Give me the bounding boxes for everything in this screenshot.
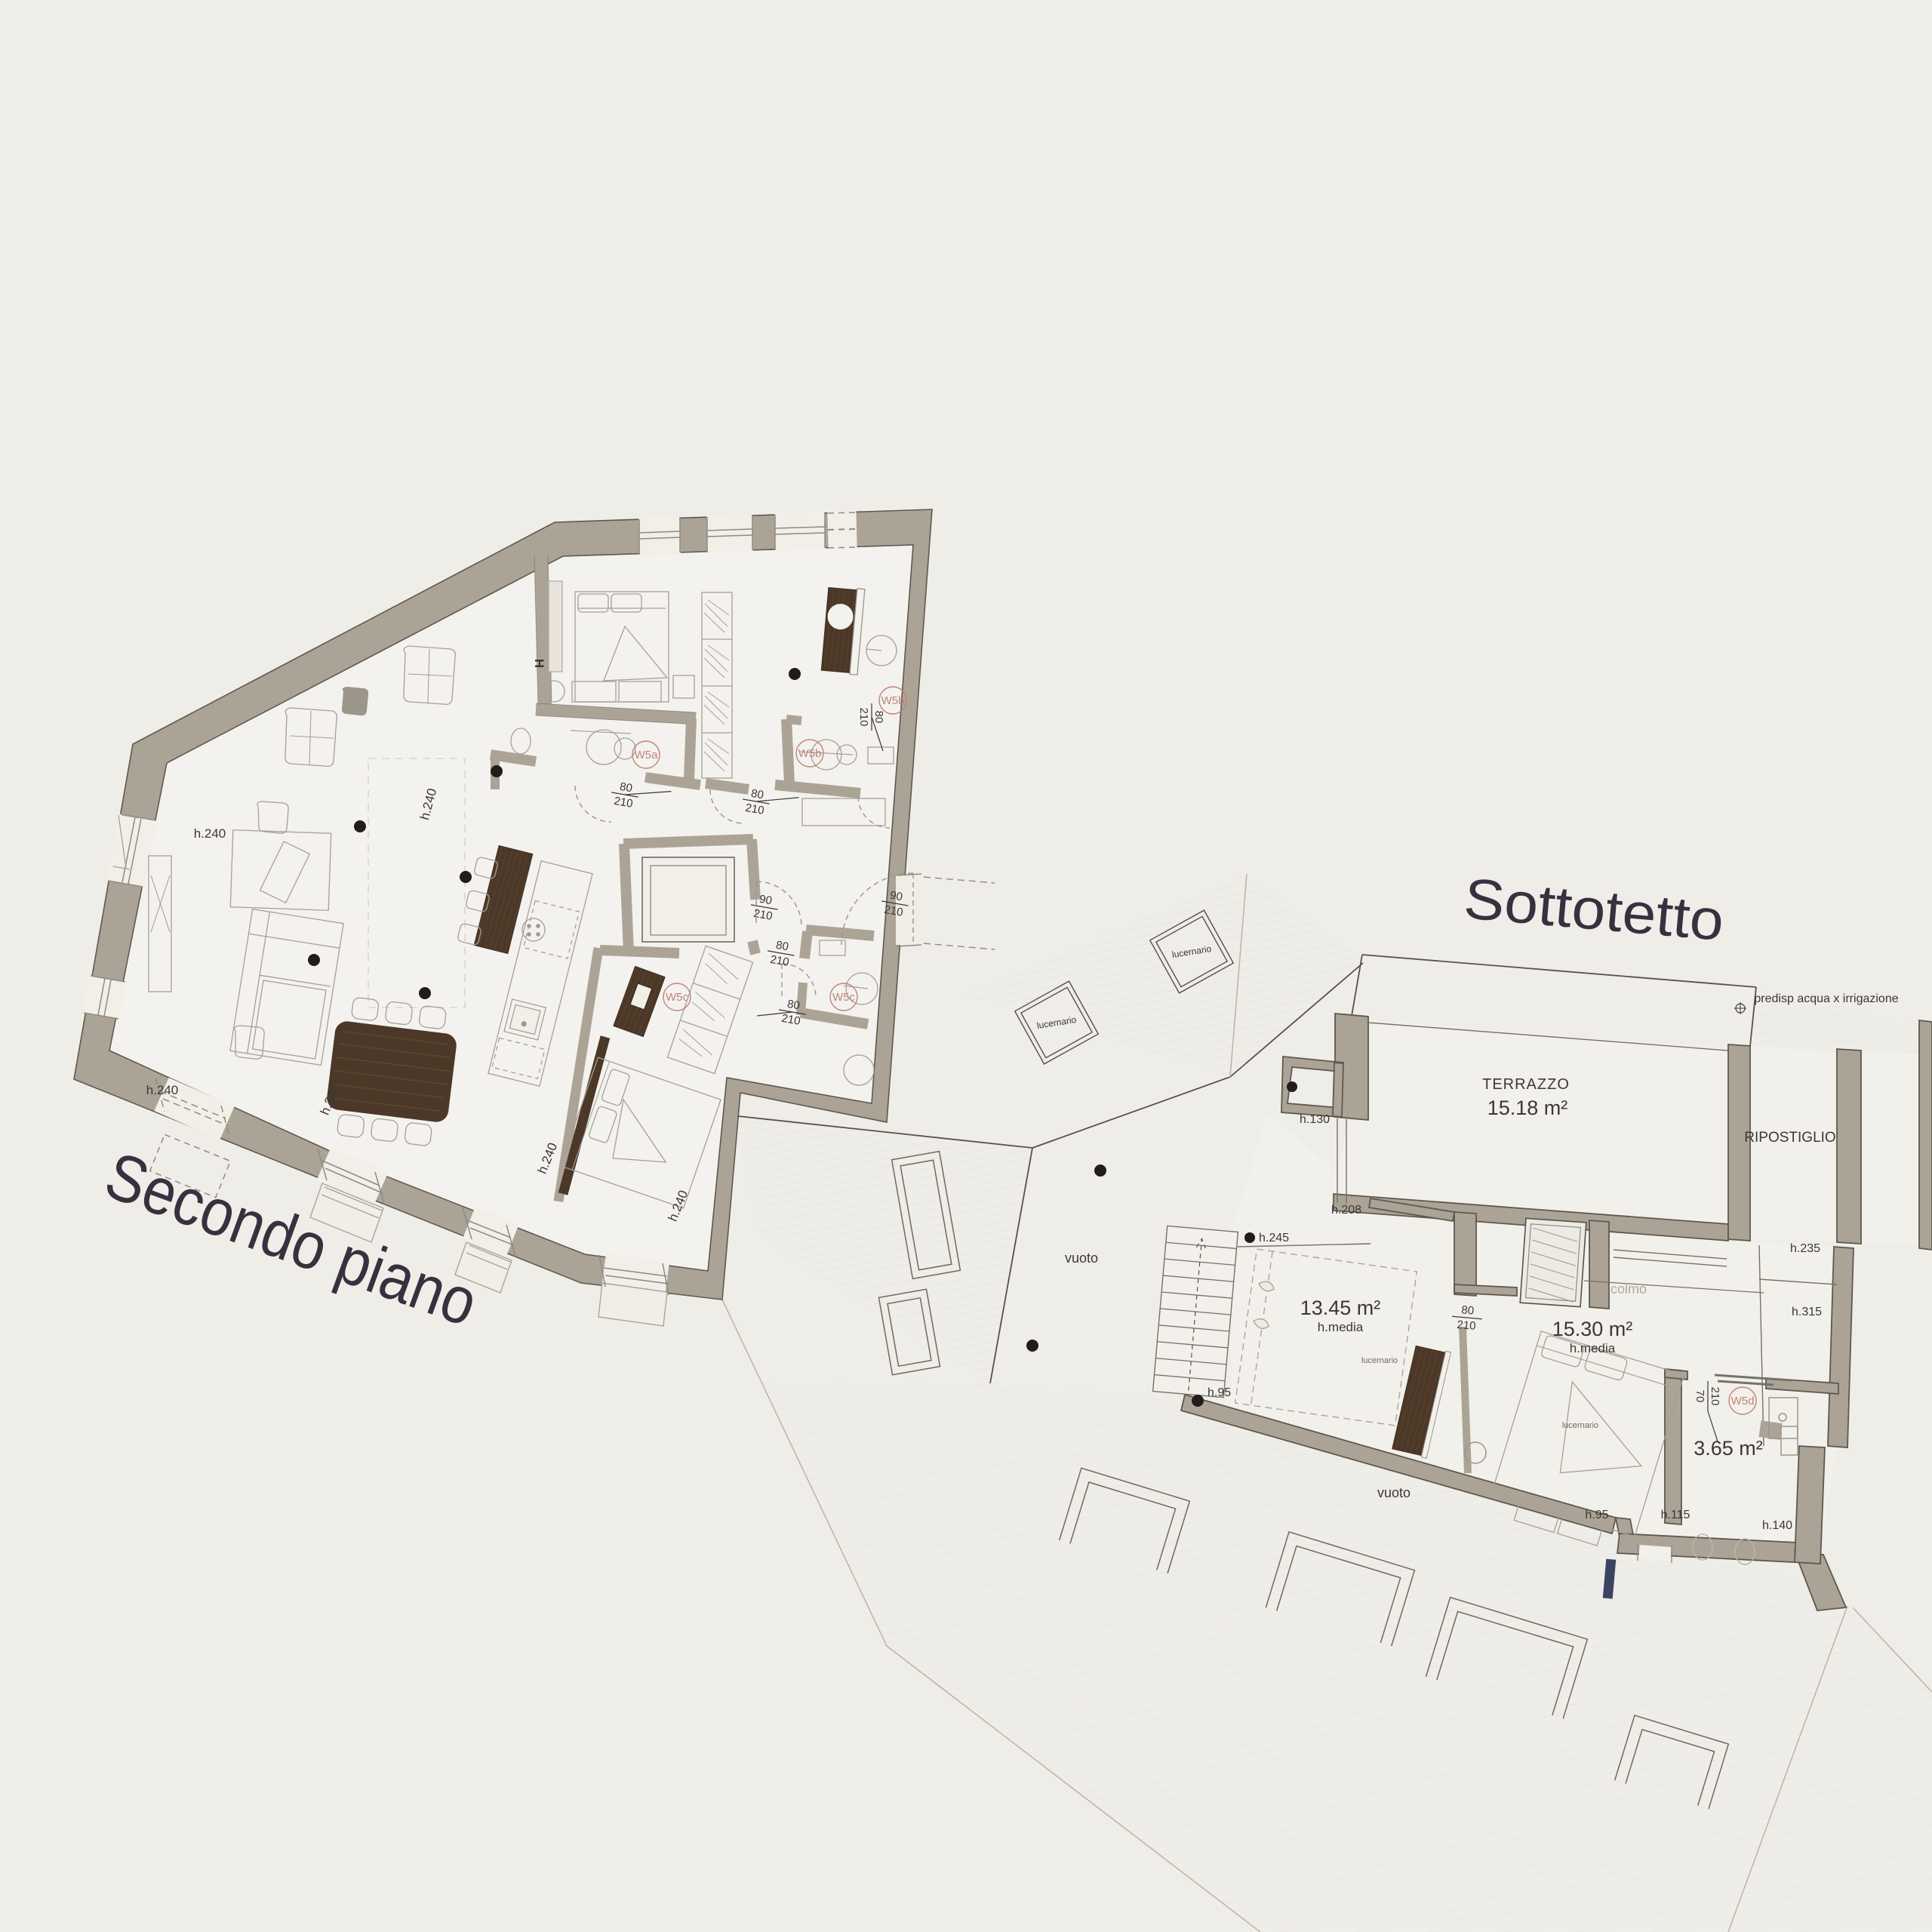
svg-text:80: 80 [750, 787, 764, 802]
svg-text:15.18 m²: 15.18 m² [1487, 1097, 1568, 1119]
svg-text:h.245: h.245 [1259, 1232, 1289, 1244]
svg-text:h.240: h.240 [146, 1083, 179, 1097]
svg-text:h.140: h.140 [1762, 1519, 1792, 1532]
svg-text:80: 80 [786, 998, 801, 1013]
svg-text:70: 70 [1694, 1390, 1706, 1403]
svg-text:vuoto: vuoto [1065, 1251, 1098, 1266]
svg-text:RIPOSTIGLIO: RIPOSTIGLIO [1744, 1130, 1835, 1146]
svg-text:lucernario: lucernario [1361, 1356, 1398, 1365]
svg-text:h.95: h.95 [1207, 1386, 1231, 1399]
svg-text:W5d: W5d [1731, 1395, 1755, 1407]
svg-text:lucernario: lucernario [1562, 1421, 1598, 1430]
svg-text:predisp acqua x irrigazione: predisp acqua x irrigazione [1754, 992, 1898, 1005]
svg-text:H: H [532, 659, 546, 668]
svg-text:3.65 m²: 3.65 m² [1694, 1437, 1763, 1460]
svg-text:80: 80 [775, 939, 789, 954]
svg-text:W5a: W5a [635, 749, 659, 761]
svg-text:vuoto: vuoto [1377, 1485, 1411, 1500]
svg-text:13.45 m²: 13.45 m² [1300, 1297, 1381, 1319]
svg-text:W5b: W5b [881, 694, 905, 707]
svg-text:210: 210 [1709, 1386, 1721, 1405]
svg-text:90: 90 [758, 893, 773, 908]
svg-text:W5c: W5c [832, 991, 856, 1004]
svg-text:h.235: h.235 [1790, 1242, 1820, 1255]
svg-text:W5b: W5b [798, 747, 822, 760]
svg-text:h.208: h.208 [1331, 1204, 1361, 1217]
svg-text:80: 80 [619, 780, 633, 795]
svg-text:90: 90 [889, 889, 903, 904]
svg-text:h.media: h.media [1318, 1320, 1364, 1334]
svg-text:h.130: h.130 [1300, 1113, 1330, 1126]
svg-text:W5c: W5c [666, 991, 689, 1004]
svg-text:80: 80 [872, 711, 885, 724]
svg-text:h.315: h.315 [1792, 1306, 1822, 1318]
svg-text:15.30 m²: 15.30 m² [1552, 1318, 1633, 1340]
svg-text:h.240: h.240 [194, 826, 226, 841]
svg-text:h.95: h.95 [1585, 1509, 1608, 1521]
svg-text:h.media: h.media [1570, 1341, 1616, 1355]
svg-text:210: 210 [1457, 1318, 1476, 1333]
svg-text:80: 80 [1461, 1303, 1475, 1317]
svg-text:colmo: colmo [1611, 1281, 1647, 1297]
svg-text:TERRAZZO: TERRAZZO [1482, 1076, 1570, 1093]
svg-text:210: 210 [857, 707, 870, 726]
svg-text:h.115: h.115 [1661, 1509, 1690, 1521]
